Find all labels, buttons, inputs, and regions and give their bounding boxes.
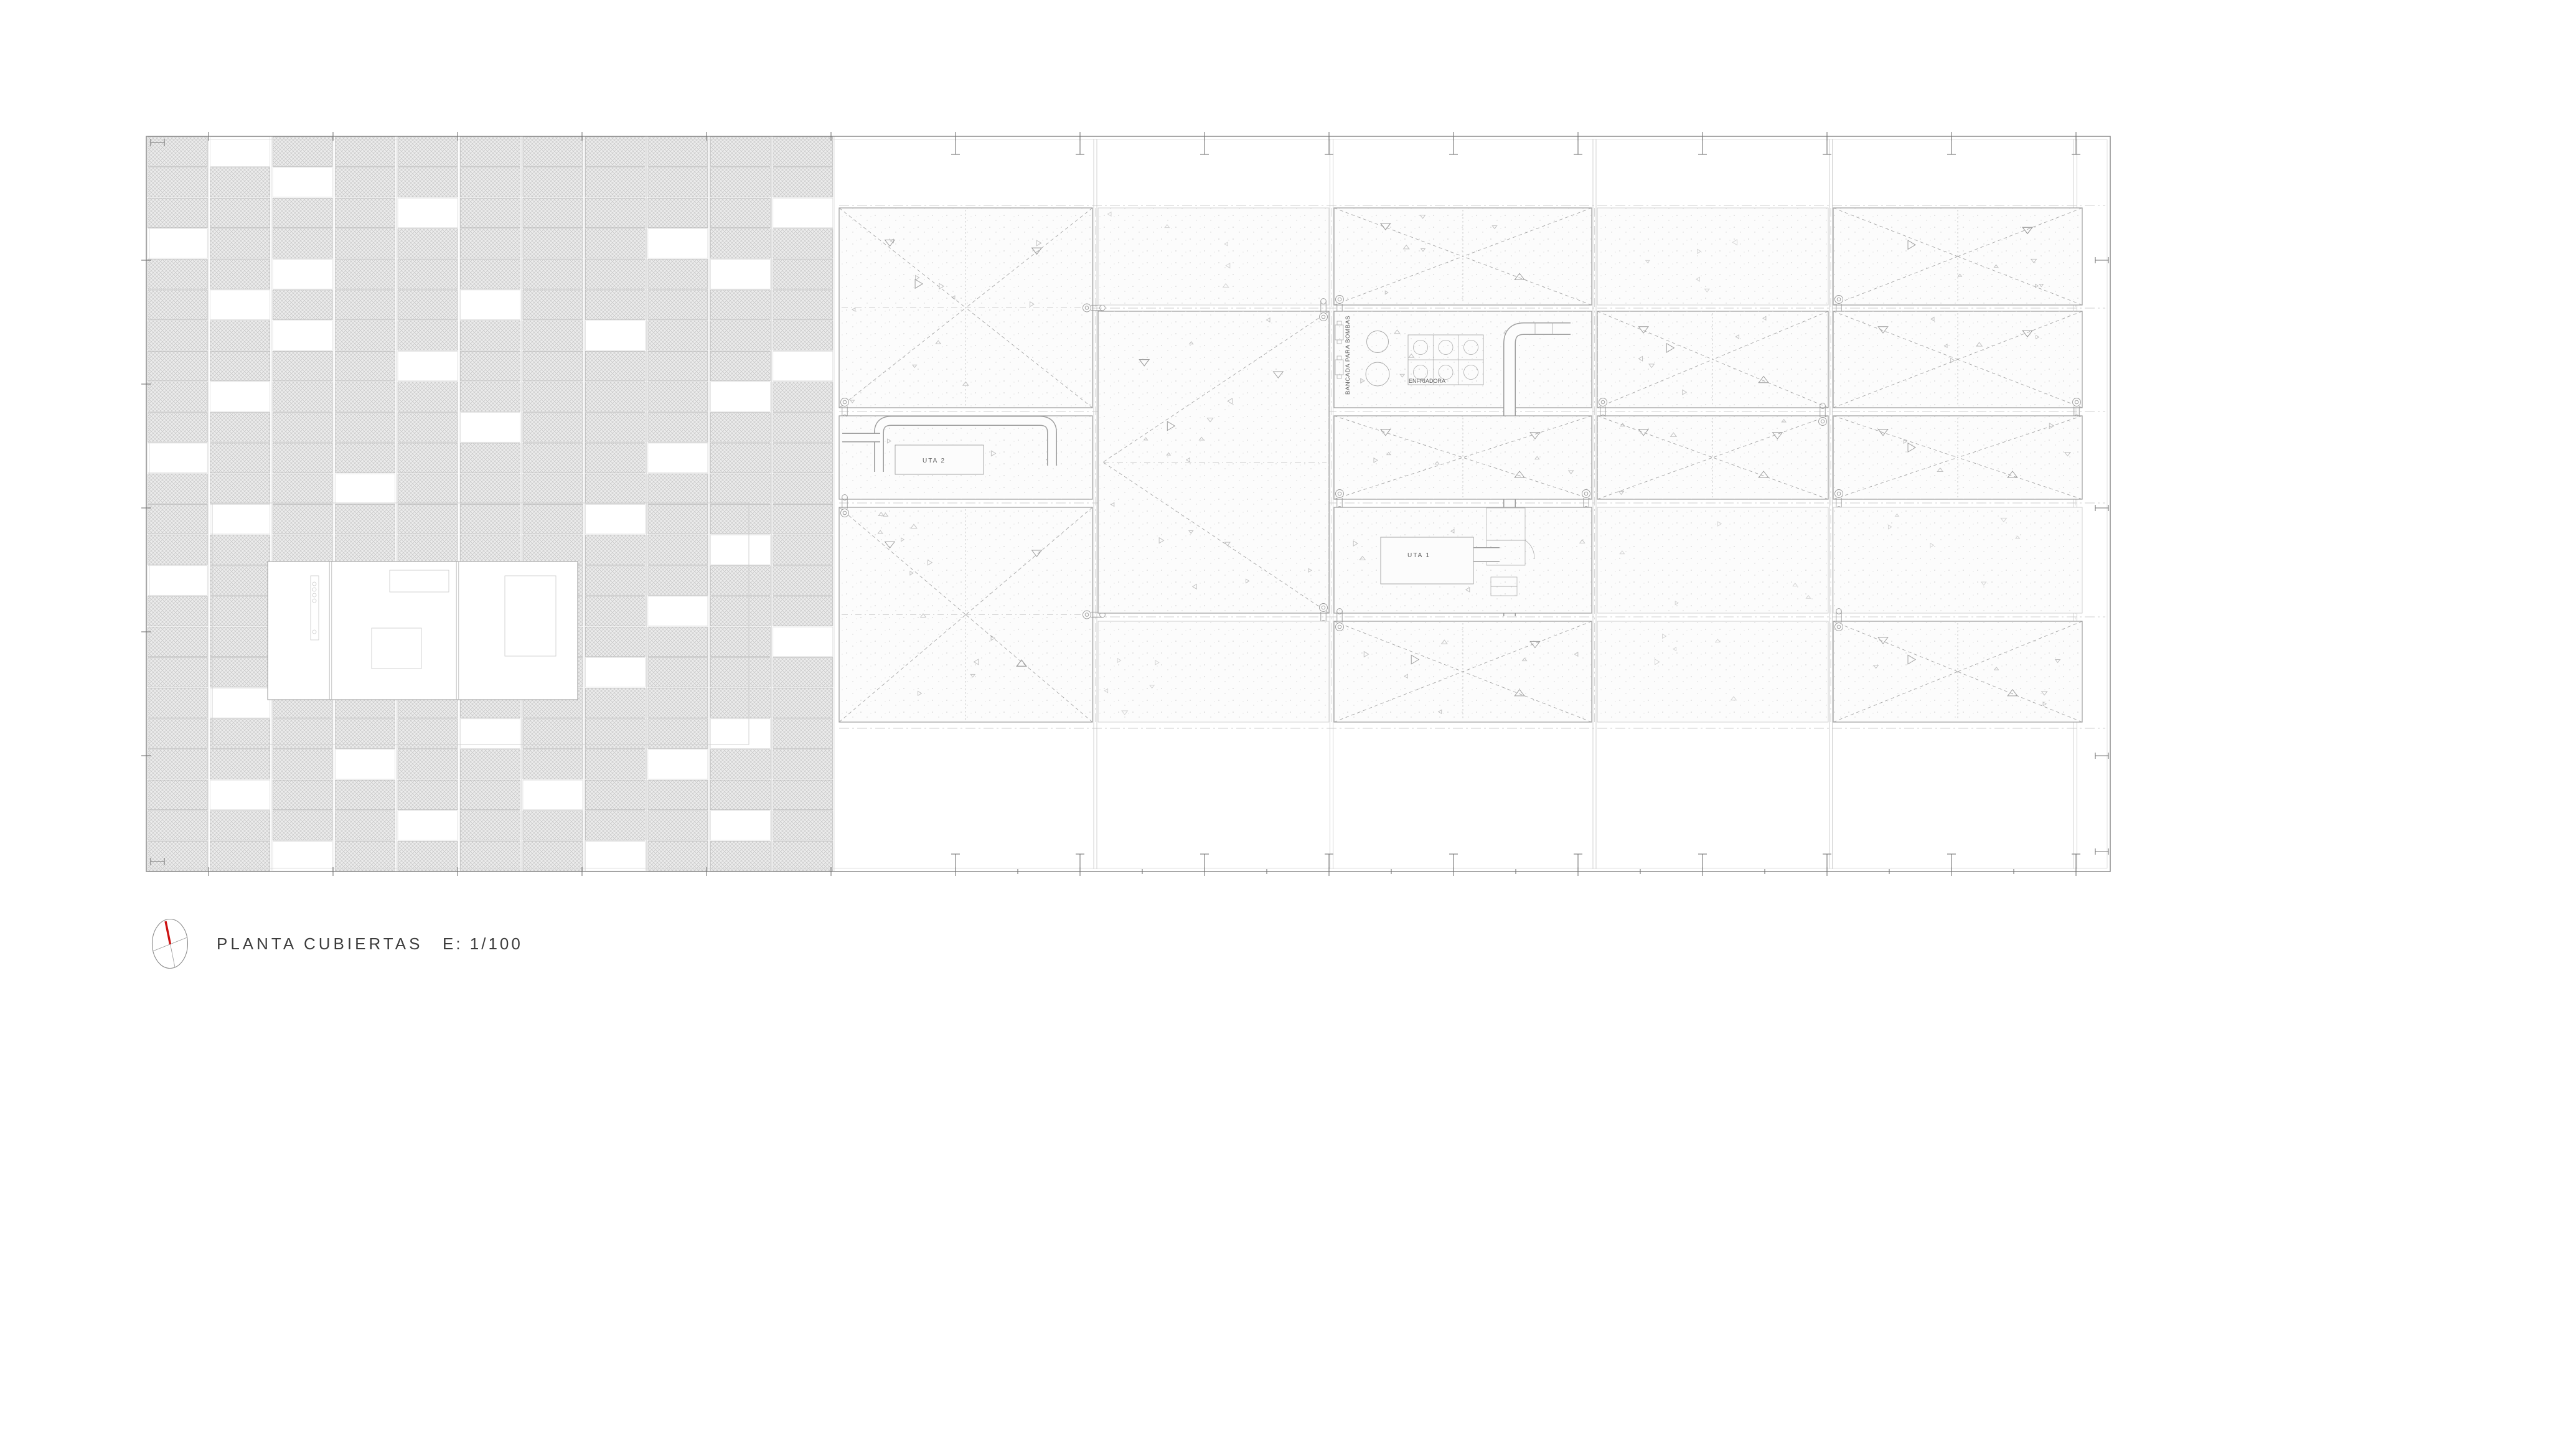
roof-panel-c2-r1 — [1098, 208, 1329, 305]
roof-panel-c3-r5 — [1334, 609, 1592, 722]
roof-panel-c4-r1 — [1597, 208, 1828, 305]
enfriadora-label: ENFRIADORA — [1409, 378, 1445, 384]
roof-panel-c3-r3 — [1334, 416, 1592, 512]
paver-grid — [146, 136, 834, 871]
roof-panel-c4-r2 — [1597, 311, 1828, 420]
roof-panel-c1-r1 — [839, 208, 1105, 420]
roof-panel-c5-r4 — [1833, 507, 2082, 613]
roof-panel-c4-r3 — [1597, 403, 1828, 499]
bancada-label: BANCADA PARA BOMBAS — [1345, 316, 1351, 395]
drawing-title: PLANTA CUBIERTAS — [217, 934, 423, 954]
roof-panel-c5-r5 — [1833, 609, 2082, 722]
roof-panel-c5-r2 — [1833, 311, 2082, 420]
roof-panel-c4-r5 — [1597, 621, 1828, 722]
drawing-scale: E: 1/100 — [443, 934, 523, 954]
roof-panel-c3-r1 — [1334, 208, 1592, 317]
north-arrow-icon — [153, 919, 188, 969]
uta1-label: UTA 1 — [1407, 552, 1430, 559]
roof-panel-c5-r1 — [1833, 208, 2082, 317]
roof-panel-c1-r3: UTA 2 — [839, 416, 1092, 499]
roof-openings — [268, 561, 578, 700]
roof-plan-drawing: UTA 2BANCADA PARA BOMBASENFRIADORAUTA 1 — [0, 0, 2574, 1456]
roof-panel-c3-r4: UTA 1 — [1334, 507, 1592, 613]
roof-panel-c4-r4 — [1597, 507, 1828, 613]
roof-panel-c2-r2 — [1098, 299, 1329, 626]
uta2-label: UTA 2 — [923, 458, 946, 464]
sheet: UTA 2BANCADA PARA BOMBASENFRIADORAUTA 1 … — [0, 0, 2574, 1456]
roof-panel-c2-r5 — [1098, 621, 1329, 722]
roof-panel-c1-r4 — [839, 495, 1105, 722]
roof-panel-c5-r3 — [1833, 416, 2082, 512]
